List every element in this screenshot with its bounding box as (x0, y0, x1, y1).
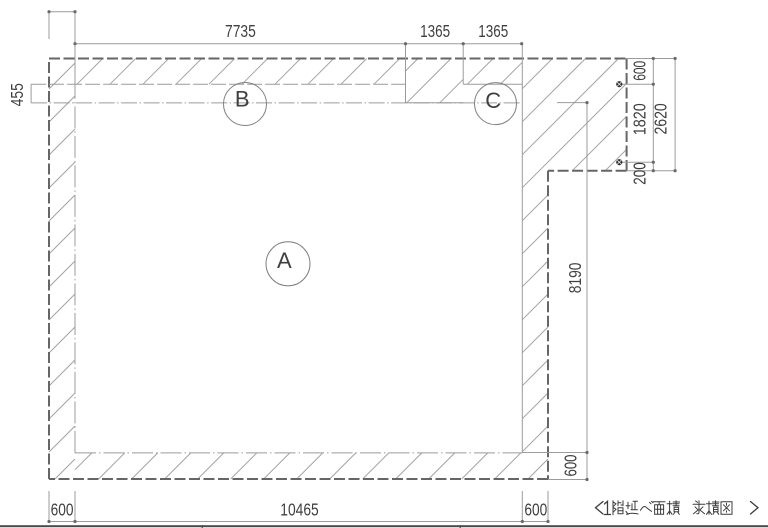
svg-text:455: 455 (7, 83, 27, 106)
svg-text:1365: 1365 (420, 21, 450, 41)
svg-text:200: 200 (630, 162, 650, 185)
svg-text:A: A (277, 248, 292, 273)
svg-text:600: 600 (51, 500, 74, 520)
svg-text:8190: 8190 (565, 262, 585, 293)
svg-text:7735: 7735 (225, 21, 256, 41)
svg-text:600: 600 (561, 454, 581, 476)
svg-text:600: 600 (524, 500, 547, 520)
svg-text:1365: 1365 (478, 21, 508, 41)
svg-text:2620: 2620 (651, 103, 671, 135)
svg-text:C: C (485, 88, 501, 113)
svg-text:10465: 10465 (280, 500, 319, 520)
svg-text:600: 600 (630, 61, 650, 81)
svg-text:1820: 1820 (630, 103, 650, 135)
svg-text:B: B (235, 86, 250, 111)
